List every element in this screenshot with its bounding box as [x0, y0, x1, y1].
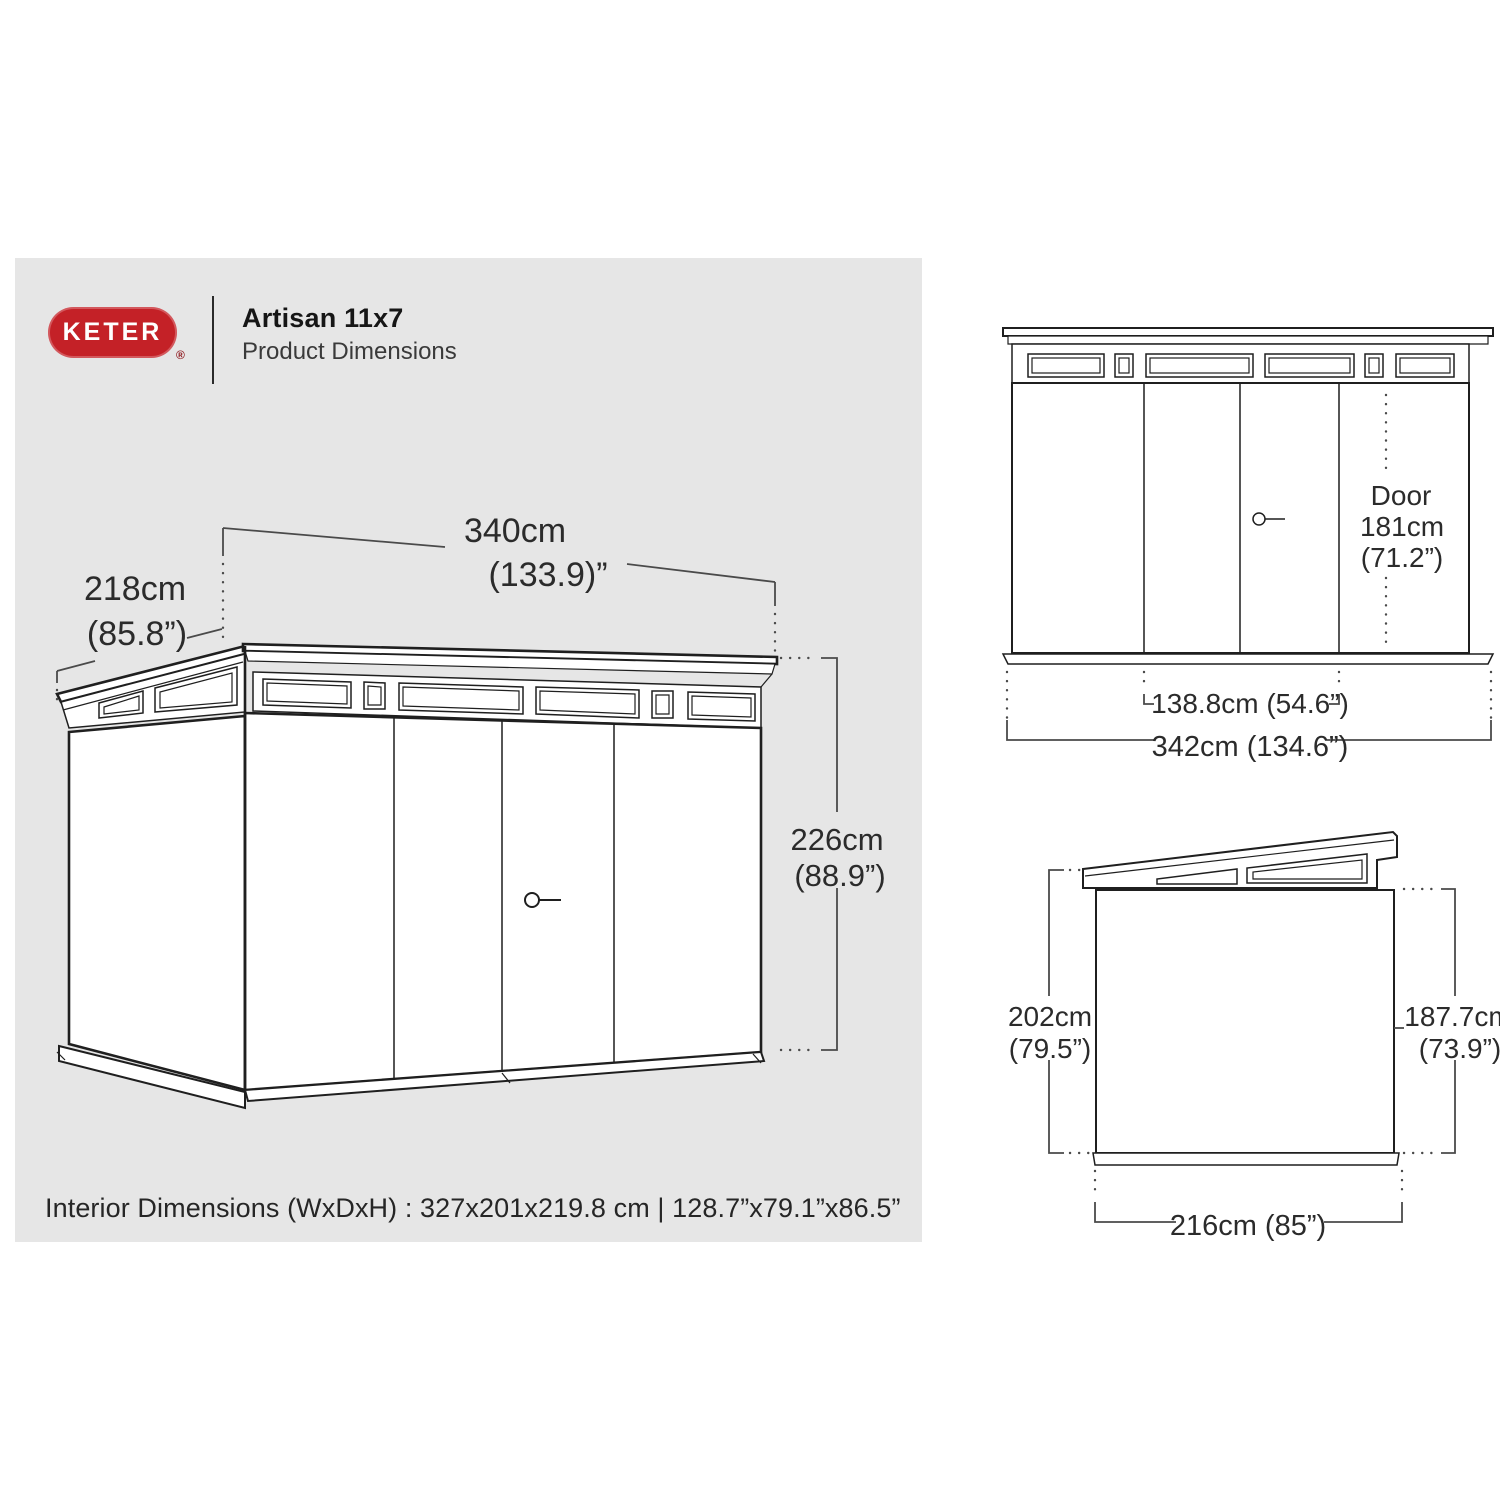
side-wall [1096, 890, 1394, 1153]
registered-trademark-icon: ® [176, 348, 185, 362]
side-roof [1083, 832, 1397, 888]
front-window-band [1012, 344, 1469, 383]
front-door-label-line2: 181cm [1360, 511, 1444, 543]
main-width-cm-label: 340cm [464, 512, 566, 551]
front-plinth [1003, 654, 1493, 664]
side-right-height-in-label: (73.9”) [1419, 1033, 1500, 1065]
page-title: Artisan 11x7 [242, 303, 404, 334]
front-cornice [1003, 328, 1493, 344]
shed-3d-side-roof [57, 646, 245, 728]
product-dimensions-sheet: KETER ® Artisan 11x7 Product Dimensions [0, 0, 1500, 1500]
keter-logo: KETER [48, 307, 177, 358]
main-depth-in-label: (85.8”) [87, 615, 187, 654]
side-plinth [1093, 1153, 1399, 1165]
shed-3d-view-svg [15, 460, 922, 1160]
front-door-label-line3: (71.2”) [1361, 542, 1443, 574]
shed-3d-side-wall [69, 716, 245, 1090]
shed-3d-front-wall [245, 713, 761, 1090]
main-width-in-label: (133.9)” [488, 556, 607, 595]
side-left-height-cm-label: 202cm [1008, 1001, 1092, 1033]
page-subtitle: Product Dimensions [242, 338, 457, 366]
front-door-width-label: 138.8cm (54.6”) [1151, 688, 1349, 720]
front-door-label-line1: Door [1371, 480, 1432, 512]
keter-logo-text: KETER [63, 318, 163, 347]
side-right-height-cm-label: 187.7cm [1404, 1001, 1500, 1033]
main-depth-cm-label: 218cm [84, 570, 186, 609]
interior-dimensions-text: Interior Dimensions (WxDxH) : 327x201x21… [45, 1193, 901, 1224]
side-left-height-in-label: (79.5”) [1009, 1033, 1091, 1065]
side-depth-label: 216cm (85”) [1170, 1210, 1326, 1243]
front-overall-width-label: 342cm (134.6”) [1152, 731, 1349, 764]
main-height-in-label: (88.9”) [794, 858, 885, 894]
header-divider [212, 296, 214, 384]
main-height-cm-label: 226cm [790, 822, 883, 858]
